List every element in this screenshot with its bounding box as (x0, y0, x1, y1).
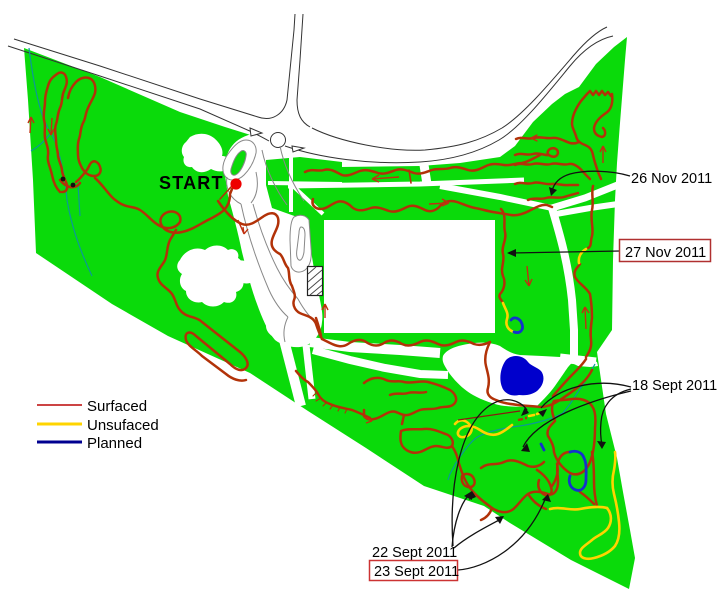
svg-text:22 Sept 2011: 22 Sept 2011 (372, 545, 457, 561)
svg-text:START: START (159, 173, 224, 193)
svg-text:23 Sept 2011: 23 Sept 2011 (374, 564, 459, 580)
svg-text:26 Nov 2011: 26 Nov 2011 (631, 171, 712, 187)
svg-text:Unsufaced: Unsufaced (87, 417, 159, 434)
svg-text:Planned: Planned (87, 435, 142, 452)
svg-text:18 Sept 2011: 18 Sept 2011 (632, 378, 717, 394)
svg-text:Surfaced: Surfaced (87, 398, 147, 415)
svg-text:27 Nov 2011: 27 Nov 2011 (625, 245, 706, 261)
